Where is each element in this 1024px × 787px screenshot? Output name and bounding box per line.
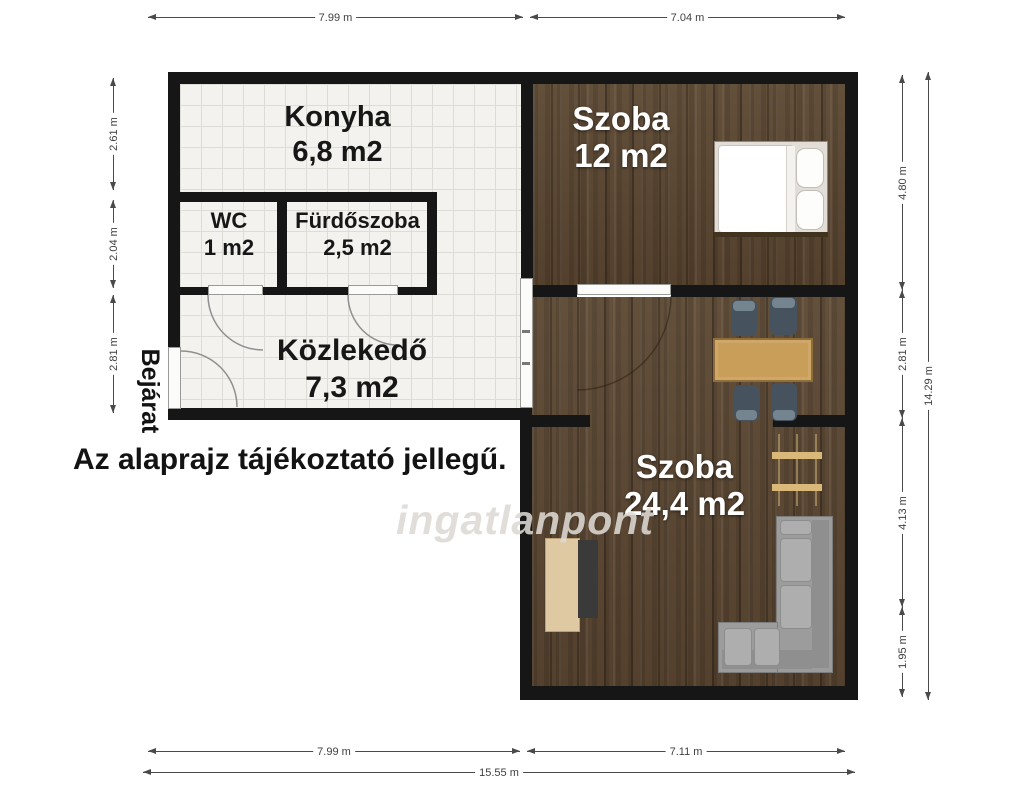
dimension-left-kitchen: 2.61 m [109,78,118,190]
dimension-top-right: 7.04 m [530,13,845,22]
arrow-down-icon [899,689,905,697]
dimension-bottom-total: 15.55 m [143,768,855,777]
door-handle [522,362,530,365]
dimension-right-lower: 4.13 m [898,418,907,607]
watermark: ingatlanpont [396,497,654,544]
dimension-label: 1.95 m [897,631,909,673]
wall [168,287,208,295]
bed-pillow [796,190,824,230]
bed-blanket-fold [786,146,795,232]
dimension-right-mid: 2.81 m [898,290,907,418]
arrow-down-icon [899,599,905,607]
bathroom-door [348,285,398,295]
door-handle [522,330,530,333]
room-name: Fürdőszoba [288,207,427,234]
room-name: Szoba [556,100,686,137]
entrance-label: Bejárat [136,331,164,451]
arrow-down-icon [110,280,116,288]
dining-chair [771,383,797,421]
arrow-down-icon [899,282,905,290]
room-name: WC [181,207,277,234]
dimension-label: 7.11 m [666,746,707,758]
bed-pillow [796,148,824,188]
arrow-left-icon [148,14,156,20]
room12-door [577,284,671,295]
sofa-cushion [780,520,812,535]
wall-stub [532,415,590,427]
dimension-right-total: 14.29 m [924,72,933,700]
shelf-post [796,434,798,506]
sofa-cushion [780,538,812,582]
wall [520,408,532,700]
sofa-cushion [724,628,752,666]
dimension-top-left: 7.99 m [148,13,523,22]
wall [520,686,858,700]
arrow-left-icon [143,769,151,775]
dimension-left-hall: 2.81 m [109,295,118,413]
arrow-down-icon [110,405,116,413]
dimension-bottom-left: 7.99 m [148,747,520,756]
arrow-right-icon [847,769,855,775]
wall [168,72,180,347]
wall [533,285,577,297]
room-label-kozlekedo: Közlekedő 7,3 m2 [232,332,472,406]
dining-table [713,338,813,382]
chair-back [773,410,795,420]
dimension-label: 15.55 m [475,767,523,779]
dining-chair [731,300,757,336]
arrow-down-icon [899,410,905,418]
dimension-left-wc: 2.04 m [109,200,118,288]
wall [277,202,287,287]
dimension-label: 4.80 m [897,162,909,204]
dimension-label: 2.81 m [897,333,909,375]
room-label-wc: WC 1 m2 [181,207,277,261]
wall [168,192,437,202]
wall [168,408,532,420]
room-area: 6,8 m2 [230,135,445,170]
dimension-label: 7.04 m [667,12,709,24]
bed-blanket [718,145,794,233]
arrow-up-icon [110,295,116,303]
entrance-door [168,347,181,409]
dimension-right-room12: 4.80 m [898,75,907,290]
arrow-up-icon [899,290,905,298]
wall [671,285,845,297]
chair-back [772,298,795,308]
tv-stand [545,538,580,632]
arrow-right-icon [515,14,523,20]
room-area: 7,3 m2 [232,369,472,406]
room-label-szoba12: Szoba 12 m2 [556,100,686,174]
arrow-left-icon [530,14,538,20]
disclaimer-text: Az alaprajz tájékoztató jellegű. [73,443,506,477]
room-label-konyha: Konyha 6,8 m2 [230,100,445,170]
dimension-label: 2.81 m [108,333,120,375]
room-area: 2,5 m2 [288,234,427,261]
dimension-bottom-right: 7.11 m [527,747,845,756]
wall-shelf [772,484,822,491]
dimension-label: 2.04 m [108,223,120,265]
wall-shelf [772,452,822,459]
dimension-label: 7.99 m [315,12,357,24]
sofa-cushion [780,585,812,629]
wc-door [208,285,263,295]
dimension-label: 14.29 m [923,362,935,410]
wall [845,72,858,700]
dining-chair [734,385,759,421]
chair-back [736,410,757,420]
tv [578,540,598,618]
room-area: 12 m2 [556,137,686,174]
dining-chair [770,297,797,335]
hall-to-livingroom-door [520,278,533,408]
shelf-post [778,434,780,506]
sofa-cushion [754,628,780,666]
arrow-up-icon [899,607,905,615]
wall [263,287,348,295]
floor-plan: Konyha 6,8 m2 WC 1 m2 Fürdőszoba 2,5 m2 … [0,0,1024,787]
arrow-down-icon [110,182,116,190]
dimension-label: 2.61 m [108,113,120,155]
arrow-left-icon [148,748,156,754]
arrow-up-icon [110,200,116,208]
wall [427,192,437,287]
dimension-right-bottom: 1.95 m [898,607,907,697]
room-name: Közlekedő [232,332,472,369]
arrow-right-icon [512,748,520,754]
wall [398,287,437,295]
bed-footboard [714,232,828,237]
arrow-up-icon [899,418,905,426]
arrow-up-icon [110,78,116,86]
wall [521,72,533,278]
room-area: 1 m2 [181,234,277,261]
arrow-right-icon [837,748,845,754]
room-label-furdoszoba: Fürdőszoba 2,5 m2 [288,207,427,261]
arrow-down-icon [925,692,931,700]
sofa-backrest [812,520,829,668]
dimension-label: 7.99 m [313,746,355,758]
dimension-label: 4.13 m [897,492,909,534]
arrow-left-icon [527,748,535,754]
room-name: Szoba [597,448,772,485]
chair-back [733,301,755,311]
arrow-up-icon [925,72,931,80]
room-name: Konyha [230,100,445,135]
arrow-right-icon [837,14,845,20]
wall [168,72,858,84]
arrow-up-icon [899,75,905,83]
shelf-post [815,434,817,506]
